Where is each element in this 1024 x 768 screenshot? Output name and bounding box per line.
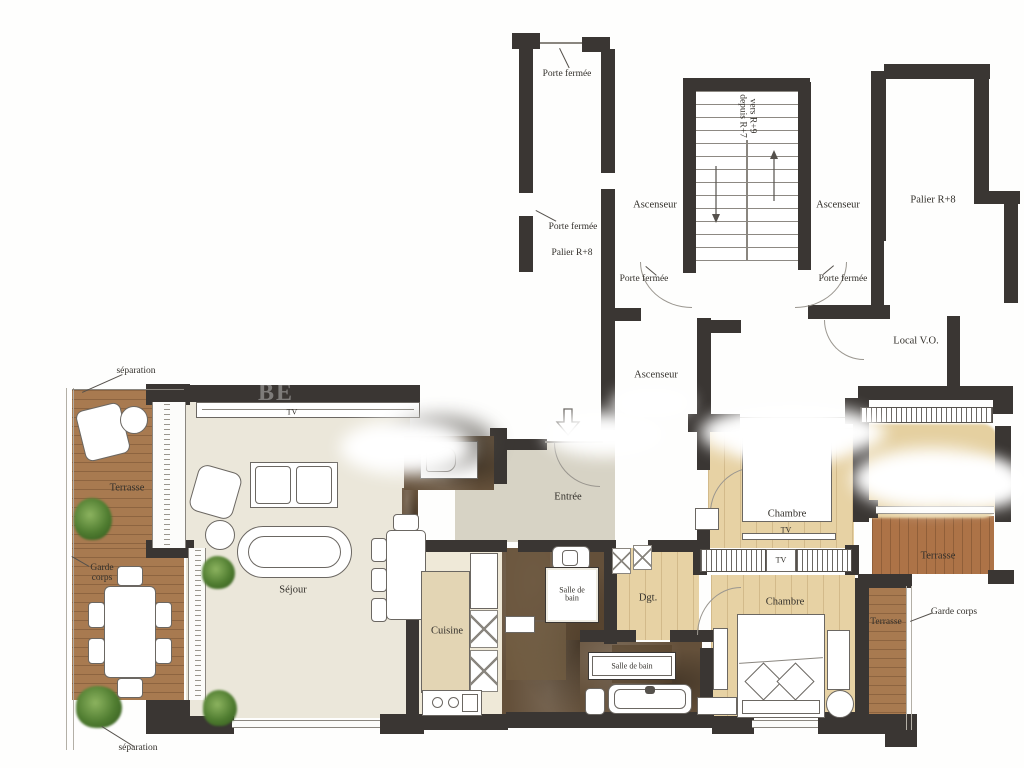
bedroom1-closet — [695, 508, 719, 530]
label-porte-fermee-corridor-left: Porte fermée — [620, 274, 669, 284]
wall-segment — [993, 396, 1013, 414]
leader-garde-corps-right — [910, 612, 933, 622]
kitchen-counter — [470, 553, 498, 609]
floor-plan: Salle de bain Salle de bain Porte fermée… — [0, 0, 1024, 768]
label-ascenseur-lower: Ascenseur — [634, 370, 678, 381]
hall-closet — [633, 545, 652, 570]
wardrobe-hatch-top-right — [860, 407, 993, 423]
label-chambre-2: Chambre — [766, 597, 805, 608]
outdoor-chair — [117, 566, 143, 586]
wall-segment — [406, 620, 419, 716]
outdoor-dining-table — [104, 586, 156, 678]
living-room-bottom-window — [232, 720, 382, 728]
bed2-headboard — [742, 700, 820, 714]
wall-segment — [974, 77, 989, 199]
wall-segment — [871, 241, 884, 309]
label-tv-sejour: TV — [287, 408, 298, 417]
label-porte-fermee-corridor-right: Porte fermée — [819, 274, 868, 284]
wall-segment — [188, 385, 420, 402]
bathroom2-label: Salle de bain — [611, 662, 652, 671]
wall-segment — [711, 320, 741, 333]
label-tv-wardrobe: TV — [776, 556, 787, 565]
hall-closet — [612, 548, 631, 574]
terrace-round-table — [120, 406, 148, 434]
side-table — [205, 520, 235, 550]
label-dgt: Dgt. — [639, 593, 657, 604]
dining-table — [386, 530, 426, 620]
smudge — [340, 420, 470, 475]
label-separation-bottom: séparation — [118, 743, 157, 753]
label-ascenseur-top: Ascenseur — [633, 200, 677, 211]
wall-segment — [683, 136, 696, 273]
leader-porte-fermee-top — [559, 48, 570, 68]
wall-segment — [855, 578, 869, 718]
bedroom2-bench — [697, 697, 737, 715]
smudge — [612, 388, 692, 418]
wall-segment — [601, 189, 615, 272]
bath1-counter — [505, 616, 535, 633]
stairs-note-line1: vers R+9 — [747, 99, 757, 134]
label-porte-fermee-top: Porte fermée — [543, 69, 592, 79]
kitchen-cabinet — [470, 650, 498, 692]
tv-console — [196, 402, 420, 418]
sink-bowl — [448, 697, 459, 708]
plant — [202, 556, 235, 589]
outdoor-chair — [117, 678, 143, 698]
label-palier-right: Palier R+8 — [910, 195, 955, 206]
bedroom2-round-table — [826, 690, 854, 718]
label-garde-corps-right: Garde corps — [931, 607, 977, 617]
smudge — [735, 420, 845, 462]
label-ascenseur-right: Ascenseur — [816, 200, 860, 211]
outdoor-chair — [155, 638, 172, 664]
insulation-squiggle — [195, 550, 201, 698]
wall-segment — [683, 78, 810, 91]
dining-chair — [393, 514, 419, 531]
label-porte-fermee-palier: Porte fermée — [549, 222, 598, 232]
storage-door-arc — [824, 320, 864, 360]
terrace-right-side-deck — [866, 586, 906, 730]
label-terrasse-right-top: Terrasse — [921, 551, 956, 562]
label-chambre-1: Chambre — [768, 509, 807, 520]
terrace-right-top-deck — [872, 516, 994, 574]
wall-segment — [858, 574, 912, 588]
wall-segment — [506, 712, 714, 728]
label-local-vo: Local V.O. — [893, 336, 938, 347]
plant — [74, 498, 112, 540]
label-sejour: Séjour — [279, 585, 306, 596]
tv-console-line — [202, 409, 414, 410]
outdoor-chair — [155, 602, 172, 628]
wall-segment — [607, 308, 641, 321]
wall-segment — [1004, 191, 1018, 303]
label-terrasse-right-side: Terrasse — [870, 617, 902, 627]
wall-segment — [858, 386, 1013, 400]
bedroom2-bottom-window — [752, 720, 820, 728]
dining-chair — [371, 598, 387, 622]
outdoor-chair — [88, 638, 105, 664]
dining-chair — [371, 538, 387, 562]
kitchen-cabinet — [470, 610, 498, 648]
leader-porte-fermee-palier — [536, 210, 557, 222]
drainboard — [462, 694, 478, 712]
stairs-note-line2: depuis R+7 — [737, 94, 747, 138]
wall-segment — [601, 49, 615, 173]
label-cuisine: Cuisine — [431, 626, 463, 637]
wall-segment — [416, 714, 508, 730]
bathtub-faucet — [645, 686, 655, 694]
bath2-label-panel: Salle de bain — [588, 652, 676, 680]
loveseat-cushion — [255, 466, 291, 504]
label-terrasse-left: Terrasse — [110, 483, 145, 494]
wall-segment — [146, 700, 190, 734]
label-garde-corps-left: Garde corps — [84, 564, 120, 584]
nightstand — [713, 628, 728, 690]
smudge — [948, 462, 1024, 507]
loveseat-cushion — [296, 466, 332, 504]
label-palier-left: Palier R+8 — [552, 248, 593, 258]
sink-bowl — [432, 697, 443, 708]
wall-segment — [712, 716, 754, 734]
insulation-squiggle — [164, 404, 170, 546]
bath1-sink-bowl — [562, 550, 578, 566]
corridor-right-door-arc — [795, 262, 847, 308]
wall-segment — [798, 82, 811, 238]
wall-segment — [871, 71, 886, 241]
door-opening-line — [540, 42, 582, 44]
wall-segment — [519, 216, 533, 272]
terrace-right-railing — [906, 586, 912, 730]
bathroom1-label: Salle de bain — [552, 587, 592, 604]
wall-segment — [885, 732, 917, 747]
bath1-shower: Salle de bain — [546, 568, 598, 622]
plant — [203, 690, 237, 726]
sofa-seat — [248, 536, 341, 568]
outdoor-chair — [88, 602, 105, 628]
dining-chair — [371, 568, 387, 592]
watermark-text: BE — [258, 380, 294, 407]
wall-segment — [856, 500, 878, 518]
bath2-fixture — [585, 688, 605, 715]
smudge — [545, 412, 665, 457]
wall-segment — [988, 570, 1014, 584]
nightstand — [827, 630, 850, 690]
wardrobe-hatch — [700, 549, 766, 572]
wall-segment — [519, 47, 533, 193]
terrace-left-railing — [66, 388, 74, 750]
label-entree: Entrée — [554, 492, 581, 503]
label-tv-chambre: TV — [781, 526, 792, 535]
wardrobe-hatch — [796, 549, 852, 572]
bath1-tile — [506, 548, 550, 620]
plant — [76, 686, 122, 728]
wall-segment — [580, 630, 636, 642]
label-stairs-direction: vers R+9 depuis R+7 — [737, 94, 758, 138]
